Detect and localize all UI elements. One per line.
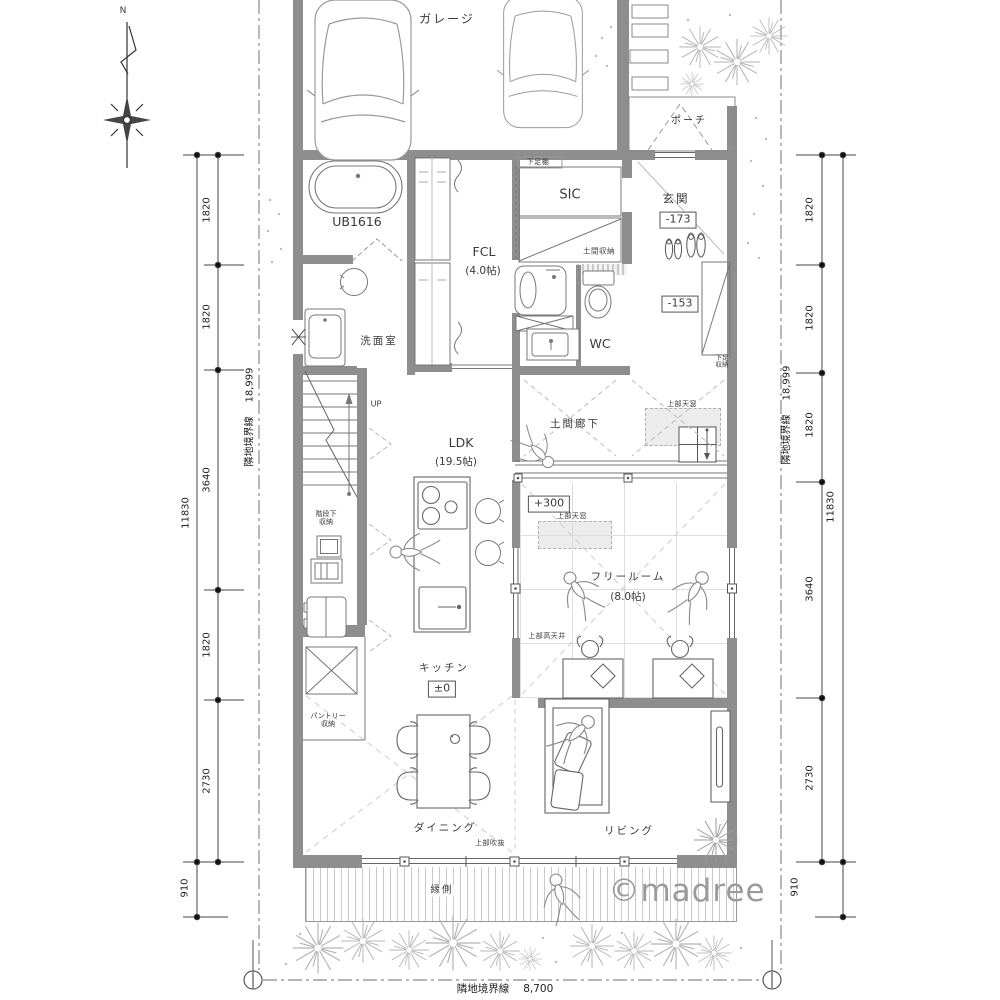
stairs	[303, 371, 357, 497]
bath-fixtures	[309, 161, 402, 213]
toilet	[583, 271, 614, 318]
free-room-desks	[563, 636, 713, 698]
compass-rose	[103, 22, 151, 168]
floor-plan-canvas: ガレージ ポーチ N UB1616 下足棚 SIC 土間収納 玄関 -173 洗…	[0, 0, 1000, 1000]
kitchen-stools	[476, 499, 505, 566]
dining-set	[397, 715, 490, 808]
laundry-fixtures	[515, 266, 579, 360]
floor-plan-drawing	[0, 0, 1000, 1000]
stepping-stones	[630, 5, 668, 90]
storage-fixtures	[304, 536, 357, 694]
sofa	[545, 699, 609, 813]
cars	[307, 0, 589, 160]
entrance-shoes	[665, 233, 705, 259]
tv-board	[711, 711, 730, 802]
